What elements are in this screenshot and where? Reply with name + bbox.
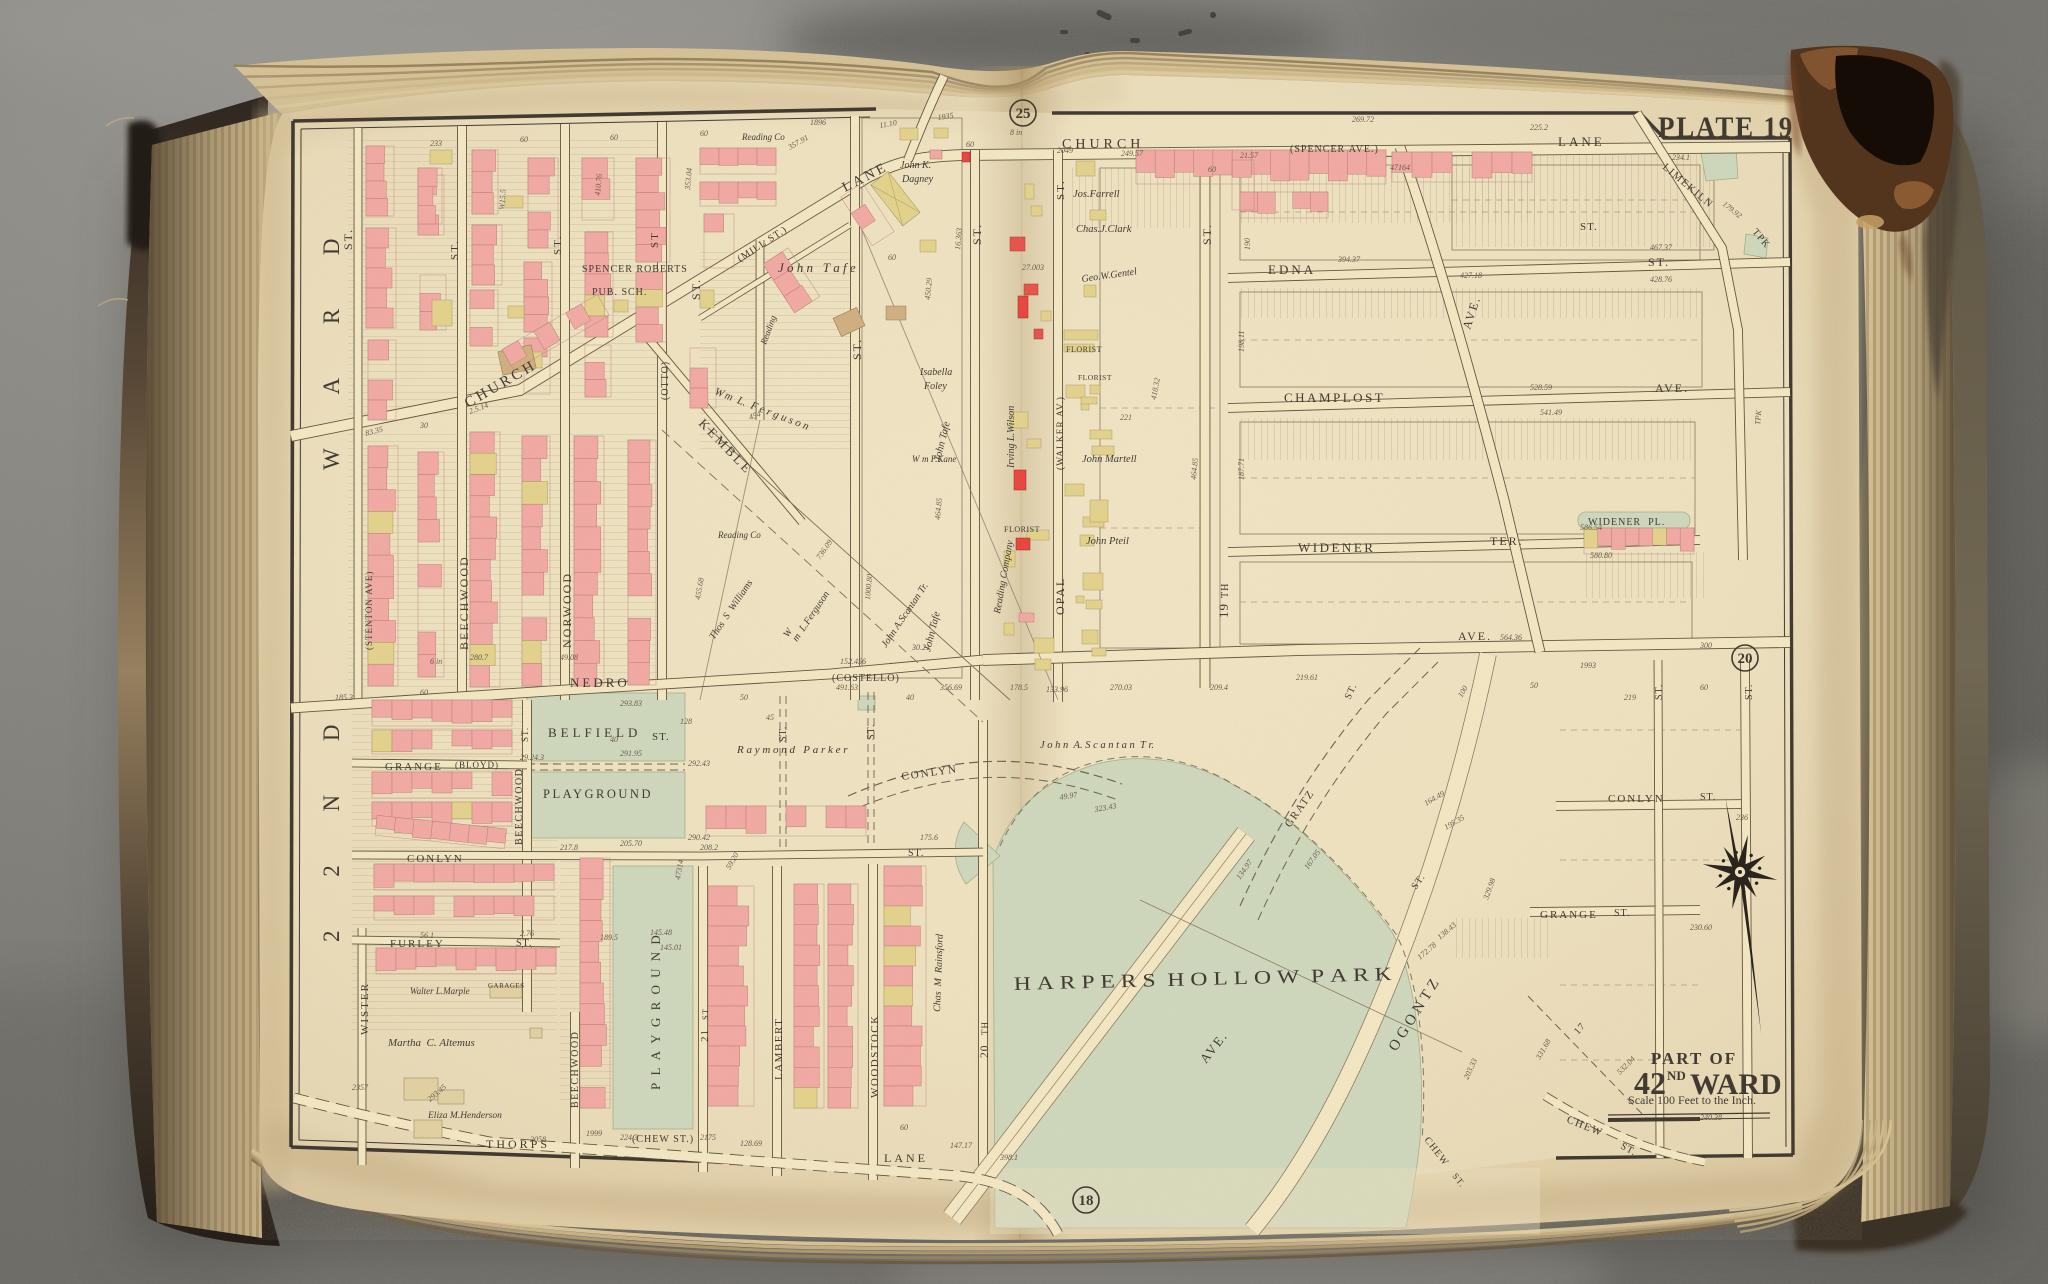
svg-text:300: 300: [1699, 641, 1712, 650]
svg-text:219: 219: [1624, 693, 1636, 702]
svg-text:30.21: 30.21: [911, 643, 930, 652]
svg-text:CHAMPLOST: CHAMPLOST: [1284, 390, 1385, 405]
svg-text:(WALKER AV.): (WALKER AV.): [1055, 396, 1066, 470]
svg-text:ST.: ST.: [449, 239, 461, 260]
svg-text:Dagney: Dagney: [901, 174, 934, 185]
svg-text:291.95: 291.95: [620, 749, 642, 758]
svg-text:209.4: 209.4: [1210, 683, 1228, 692]
svg-text:60: 60: [966, 140, 974, 149]
svg-text:2049: 2049: [1057, 146, 1073, 155]
svg-text:PUB. SCH.: PUB. SCH.: [592, 287, 647, 298]
svg-text:WOODSTOCK: WOODSTOCK: [869, 1014, 881, 1098]
svg-text:2175: 2175: [700, 1133, 716, 1142]
svg-text:ST.: ST.: [1200, 223, 1214, 245]
svg-text:OPAL: OPAL: [1053, 577, 1067, 615]
svg-text:R a y m o n d P a r k e r: R a y m o n d P a r k e r: [736, 744, 848, 756]
svg-text:60: 60: [610, 133, 618, 142]
svg-text:Scale 100 Feet to the Inch.: Scale 100 Feet to the Inch.: [1628, 1093, 1756, 1107]
svg-text:AVE.: AVE.: [1458, 629, 1492, 643]
svg-text:27.003: 27.003: [1022, 263, 1044, 272]
svg-text:464.85: 464.85: [1189, 457, 1200, 480]
svg-text:189.5: 189.5: [600, 933, 618, 942]
svg-text:292.43: 292.43: [688, 759, 710, 768]
svg-text:2 2 N D: 2 2 N D: [319, 701, 344, 942]
svg-text:224.3: 224.3: [620, 1133, 638, 1142]
svg-text:W A R D: W A R D: [319, 214, 344, 470]
svg-text:John Pteil: John Pteil: [1086, 536, 1129, 547]
svg-text:175.6: 175.6: [920, 833, 938, 842]
svg-text:ST.: ST.: [516, 938, 532, 949]
svg-text:EDNA: EDNA: [1268, 262, 1316, 277]
svg-text:FLORIST: FLORIST: [1078, 373, 1112, 382]
svg-text:6 in: 6 in: [430, 657, 442, 666]
svg-text:450.29: 450.29: [923, 277, 934, 300]
svg-text:BEECHWOOD: BEECHWOOD: [514, 768, 525, 845]
svg-text:356.69: 356.69: [939, 683, 962, 692]
svg-text:ST.: ST.: [970, 223, 984, 245]
svg-text:230.60: 230.60: [1690, 923, 1712, 932]
svg-text:290.42: 290.42: [688, 833, 710, 842]
svg-text:Isabella: Isabella: [919, 367, 952, 378]
svg-text:208.2: 208.2: [700, 843, 718, 852]
svg-text:SPENCER ROBERTS: SPENCER ROBERTS: [582, 264, 688, 275]
svg-text:410.76: 410.76: [593, 173, 604, 196]
svg-text:ND: ND: [1667, 1068, 1686, 1083]
svg-text:219.61: 219.61: [1296, 673, 1318, 682]
svg-text:394.37: 394.37: [1337, 255, 1361, 264]
svg-text:30: 30: [419, 421, 428, 430]
svg-text:J o h n A. S c a n t a n T r: J o h n A. S c a n t a n T r.: [1040, 740, 1154, 751]
svg-text:293.83: 293.83: [620, 699, 642, 708]
svg-text:528.59: 528.59: [1530, 383, 1552, 392]
svg-text:W15.5: W15.5: [497, 189, 508, 210]
svg-text:128: 128: [680, 717, 692, 726]
svg-text:1999: 1999: [586, 1129, 602, 1138]
svg-text:60: 60: [1700, 683, 1708, 692]
svg-text:2058: 2058: [530, 1135, 546, 1144]
svg-text:564.36: 564.36: [1500, 633, 1522, 642]
svg-text:427.18: 427.18: [1460, 271, 1482, 280]
svg-text:45: 45: [766, 713, 774, 722]
svg-text:TER.: TER.: [1490, 534, 1524, 548]
svg-text:269.72: 269.72: [1352, 115, 1374, 124]
svg-text:185.3: 185.3: [335, 693, 353, 702]
svg-text:TPK: TPK: [1753, 409, 1763, 425]
svg-text:16.363: 16.363: [953, 227, 964, 250]
svg-text:CONLYN: CONLYN: [1608, 793, 1665, 805]
svg-text:LAMBERT: LAMBERT: [773, 1018, 785, 1080]
svg-text:187.71: 187.71: [1237, 458, 1246, 480]
svg-text:FLORIST: FLORIST: [1066, 345, 1102, 354]
svg-text:249.57: 249.57: [1121, 149, 1144, 158]
svg-text:ST.: ST.: [1580, 221, 1598, 233]
svg-text:NEDRO: NEDRO: [570, 675, 630, 690]
svg-text:GARAGES: GARAGES: [488, 982, 525, 990]
svg-text:Jos.Farrell: Jos.Farrell: [1073, 189, 1120, 200]
svg-text:280.7: 280.7: [470, 653, 489, 662]
svg-text:Walter L.Marple: Walter L.Marple: [410, 986, 470, 996]
svg-text:GRANGE: GRANGE: [385, 761, 443, 773]
svg-text:2.76: 2.76: [520, 929, 534, 938]
svg-text:8 in: 8 in: [1010, 128, 1022, 137]
svg-text:Foley: Foley: [923, 381, 947, 392]
svg-text:60: 60: [700, 129, 708, 138]
svg-text:LANE: LANE: [1558, 134, 1605, 149]
svg-text:TH: TH: [1220, 583, 1231, 598]
svg-text:20: 20: [1738, 651, 1753, 667]
svg-text:60: 60: [520, 135, 528, 144]
svg-text:ST.: ST.: [866, 724, 877, 740]
svg-text:541.49: 541.49: [1540, 408, 1562, 417]
svg-text:ST: ST: [649, 231, 661, 248]
svg-text:(STENTON AVE): (STENTON AVE): [364, 571, 374, 650]
svg-text:233: 233: [430, 139, 442, 148]
svg-text:(CHEW ST.): (CHEW ST.): [632, 1134, 694, 1145]
svg-text:ST.: ST.: [1654, 684, 1665, 700]
svg-text:398.1: 398.1: [999, 1153, 1018, 1162]
svg-text:(SPENCER AVE.): (SPENCER AVE.): [1290, 144, 1379, 155]
svg-text:19: 19: [1216, 603, 1231, 618]
svg-text:m F.Kane: m F.Kane: [922, 454, 956, 464]
svg-text:25: 25: [1016, 106, 1031, 122]
svg-text:Reading Co: Reading Co: [717, 530, 761, 540]
svg-text:491.63: 491.63: [836, 683, 858, 692]
svg-text:18: 18: [1079, 1193, 1094, 1209]
svg-text:PLAYGROUND: PLAYGROUND: [543, 787, 653, 801]
svg-text:WISTER: WISTER: [359, 982, 371, 1035]
svg-text:21: 21: [699, 1029, 711, 1042]
svg-text:ST.: ST.: [1614, 908, 1630, 919]
svg-text:PLATE 19: PLATE 19: [1658, 111, 1794, 144]
svg-text:580.80: 580.80: [1590, 551, 1612, 560]
svg-text:ST.: ST.: [520, 727, 530, 742]
svg-text:205.70: 205.70: [620, 839, 642, 848]
svg-text:586.54: 586.54: [1580, 523, 1602, 532]
svg-text:J o h n T a f e: J o h n T a f e: [778, 260, 856, 275]
svg-text:236: 236: [1736, 813, 1748, 822]
svg-text:270.03: 270.03: [1110, 683, 1132, 692]
svg-text:152.456: 152.456: [840, 657, 866, 666]
svg-text:ST.: ST.: [850, 338, 864, 360]
svg-text:P L A Y G R O U N D: P L A Y G R O U N D: [648, 933, 663, 1090]
svg-text:240.38: 240.38: [1700, 1113, 1722, 1122]
svg-text:ST.: ST.: [1700, 792, 1716, 803]
svg-text:BEECHWOOD: BEECHWOOD: [570, 1031, 581, 1108]
svg-text:Martha C. Altemus: Martha C. Altemus: [387, 1037, 475, 1049]
svg-text:133.96: 133.96: [1046, 685, 1068, 694]
svg-text:John K.: John K.: [900, 160, 931, 171]
svg-text:40: 40: [610, 735, 618, 744]
svg-text:60: 60: [1208, 165, 1216, 174]
svg-text:BELFIELD: BELFIELD: [548, 725, 641, 740]
svg-text:60: 60: [900, 1123, 908, 1132]
svg-text:ST: ST: [700, 1008, 710, 1020]
svg-text:190: 190: [1243, 238, 1252, 250]
svg-text:ST.: ST.: [341, 228, 355, 250]
svg-text:234.1: 234.1: [1672, 153, 1690, 162]
svg-text:1896: 1896: [810, 118, 826, 127]
svg-text:29.24.3: 29.24.3: [520, 753, 544, 762]
svg-text:50: 50: [740, 693, 748, 702]
svg-text:ST.: ST.: [778, 726, 789, 742]
svg-text:60: 60: [420, 688, 428, 697]
svg-text:198.11: 198.11: [1237, 331, 1246, 352]
svg-text:428.76: 428.76: [1650, 275, 1672, 284]
svg-text:49.08: 49.08: [560, 653, 578, 662]
svg-text:221: 221: [1120, 413, 1132, 422]
svg-text:John Martell: John Martell: [1082, 454, 1137, 465]
svg-text:ST.: ST.: [908, 848, 924, 859]
svg-text:ST.: ST.: [1055, 179, 1067, 200]
svg-text:128.69: 128.69: [740, 1139, 762, 1148]
svg-text:217.8: 217.8: [560, 843, 578, 852]
svg-text:ST.: ST.: [1744, 684, 1755, 700]
svg-text:Eliza M.Henderson: Eliza M.Henderson: [427, 1111, 502, 1121]
svg-text:AVE.: AVE.: [1655, 381, 1689, 395]
svg-text:ST.: ST.: [689, 278, 703, 300]
svg-text:467.37: 467.37: [1650, 243, 1673, 252]
svg-text:147.17: 147.17: [950, 1141, 973, 1150]
svg-text:1993: 1993: [1580, 661, 1596, 670]
svg-text:ST.: ST.: [552, 234, 564, 255]
svg-text:178.5: 178.5: [1010, 683, 1028, 692]
svg-text:(BLOYD): (BLOYD): [455, 760, 499, 770]
svg-text:WIDENER: WIDENER: [1298, 540, 1375, 555]
svg-text:21.57: 21.57: [1240, 151, 1259, 160]
svg-text:60: 60: [888, 253, 896, 262]
svg-text:464.85: 464.85: [933, 497, 944, 520]
svg-text:145.01: 145.01: [660, 943, 682, 952]
svg-text:20: 20: [979, 1045, 991, 1059]
svg-text:145.48: 145.48: [650, 928, 672, 937]
svg-text:225.2: 225.2: [1530, 123, 1548, 132]
svg-text:40: 40: [906, 693, 914, 702]
svg-text:Reading Co: Reading Co: [741, 132, 785, 142]
svg-text:FLORIST: FLORIST: [1004, 525, 1040, 534]
svg-text:FURLEY: FURLEY: [390, 938, 445, 950]
svg-text:GRANGE: GRANGE: [1540, 909, 1598, 921]
svg-text:LANE: LANE: [884, 1151, 928, 1165]
svg-text:56.1: 56.1: [420, 931, 434, 940]
svg-text:(OTTO): (OTTO): [660, 361, 671, 400]
svg-text:NORWOOD: NORWOOD: [560, 572, 574, 648]
svg-text:Irving L.Wilson: Irving L.Wilson: [1006, 406, 1017, 469]
svg-text:CONLYN: CONLYN: [407, 853, 464, 865]
svg-text:47164: 47164: [1390, 163, 1410, 172]
svg-text:Chas.J.Clark: Chas.J.Clark: [1076, 224, 1132, 235]
svg-text:BEECHWOOD: BEECHWOOD: [457, 555, 471, 650]
svg-text:2357: 2357: [352, 1083, 369, 1092]
svg-text:ST.: ST.: [652, 731, 670, 743]
svg-text:ST.: ST.: [1648, 255, 1670, 269]
svg-text:50: 50: [1530, 681, 1538, 690]
svg-text:TH: TH: [980, 1021, 990, 1035]
